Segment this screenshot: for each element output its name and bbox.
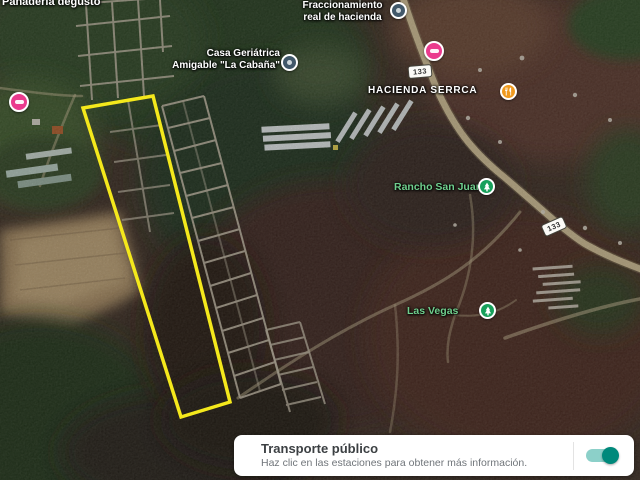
poi-dot-icon xyxy=(396,8,401,13)
fork-knife-icon xyxy=(504,87,513,96)
park-tree-marker-las-vegas[interactable] xyxy=(479,302,496,319)
pink-poi-marker-west[interactable] xyxy=(9,92,29,112)
default-poi-marker-casa[interactable] xyxy=(281,54,298,71)
pink-poi-glyph xyxy=(15,100,24,104)
restaurant-marker[interactable] xyxy=(500,83,517,100)
default-poi-marker-fraccionamiento[interactable] xyxy=(390,2,407,19)
toggle-knob xyxy=(602,447,619,464)
card-divider xyxy=(573,442,574,470)
tree-icon xyxy=(483,306,493,316)
transit-info-card: Transporte público Haz clic en las estac… xyxy=(234,435,634,476)
pink-poi-glyph xyxy=(430,49,439,53)
poi-dot-icon xyxy=(287,60,292,65)
route-shield-133-north: 133 xyxy=(407,64,432,79)
satellite-imagery[interactable] xyxy=(0,0,640,480)
transit-toggle-switch[interactable] xyxy=(586,449,618,462)
transit-card-title: Transporte público xyxy=(261,441,565,456)
transit-card-text: Transporte público Haz clic en las estac… xyxy=(234,441,565,470)
pink-poi-marker-east[interactable] xyxy=(424,41,444,61)
transit-card-subtitle: Haz clic en las estaciones para obtener … xyxy=(261,457,565,470)
park-tree-marker-rancho[interactable] xyxy=(478,178,495,195)
map-viewport[interactable]: Panadería degusto Fraccionamiento real d… xyxy=(0,0,640,480)
tree-icon xyxy=(482,182,492,192)
